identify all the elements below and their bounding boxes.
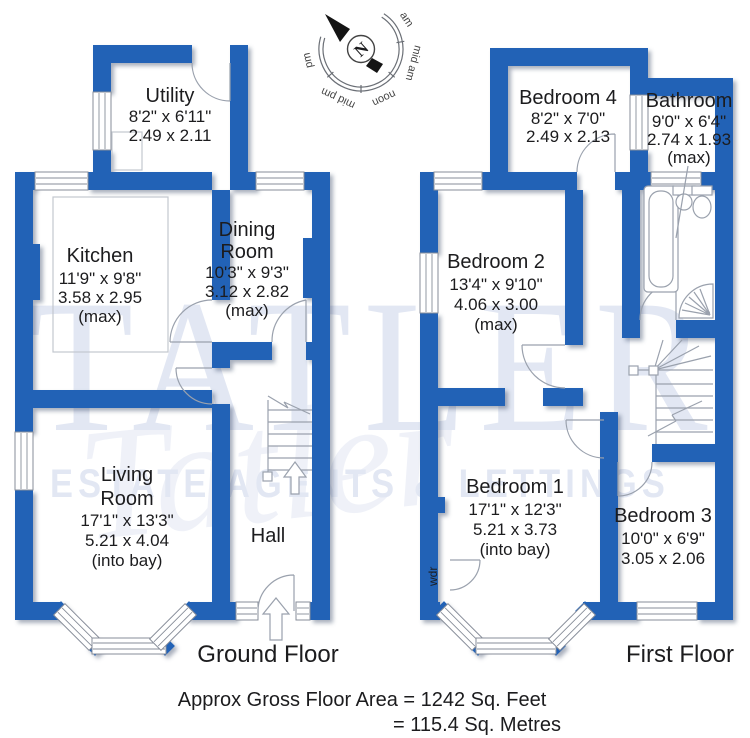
window — [15, 432, 33, 490]
wall-segment — [630, 150, 648, 172]
wall-segment — [88, 172, 93, 190]
window — [420, 253, 438, 313]
living-note: (into bay) — [92, 551, 163, 570]
front-door-sidelight — [236, 602, 258, 620]
bathtub-inner — [649, 191, 673, 287]
wall-segment — [230, 342, 272, 360]
newel-post — [649, 366, 658, 375]
chimney-breast — [33, 244, 40, 300]
utility-imperial: 8'2" x 6'11" — [129, 107, 212, 126]
wall-segment — [482, 172, 508, 190]
wall-segment — [622, 320, 640, 338]
wall-segment — [652, 444, 733, 462]
dining-note: (max) — [225, 301, 268, 320]
wall-segment — [420, 388, 505, 406]
front-door-sidelight — [296, 602, 310, 620]
bedroom1-imperial: 17'1" x 12'3" — [468, 500, 561, 519]
wall-segment — [676, 320, 733, 338]
toilet-bowl — [693, 196, 711, 218]
wall-segment — [490, 48, 508, 172]
living-label-1: Living — [101, 464, 153, 486]
utility-metric: 2.49 x 2.11 — [129, 126, 212, 145]
wall-segment — [248, 172, 256, 190]
bedroom2-imperial: 13'4" x 9'10" — [449, 275, 542, 294]
sun-label-noon: noon — [370, 87, 397, 108]
bedroom4-label: Bedroom 4 — [519, 87, 617, 109]
newel-post — [629, 366, 638, 375]
bedroom3-label: Bedroom 3 — [614, 505, 712, 527]
wardrobe-label: wdr — [426, 567, 440, 587]
entrance-arrow — [263, 598, 289, 640]
dining-imperial: 10'3" x 9'3" — [205, 263, 289, 282]
dining-metric: 3.12 x 2.82 — [205, 282, 289, 301]
wall-segment — [508, 172, 577, 190]
door-arc — [450, 560, 480, 590]
sun-label-pm: pm — [301, 52, 316, 69]
wall-segment — [697, 602, 733, 620]
bedroom4-imperial: 8'2" x 7'0" — [531, 109, 605, 128]
living-metric: 5.21 x 4.04 — [85, 531, 169, 550]
wall-segment — [15, 172, 35, 190]
window — [256, 172, 304, 190]
newel-post — [263, 472, 272, 481]
wall-segment — [420, 190, 438, 253]
bedroom1-metric: 5.21 x 3.73 — [473, 520, 557, 539]
wall-segment — [565, 190, 583, 345]
shower-drain — [706, 311, 710, 315]
bay-window — [476, 638, 556, 654]
bedroom3-metric: 3.05 x 2.06 — [621, 549, 705, 568]
bathroom-label: Bathroom — [646, 90, 733, 112]
window — [93, 92, 111, 150]
wall-segment — [312, 190, 330, 620]
floor-plan: TATLER Tatler ESTATE AGENTS & LETTINGS — [0, 0, 750, 738]
utility-label: Utility — [146, 85, 195, 107]
window — [434, 172, 482, 190]
wall-segment — [304, 172, 330, 190]
bathroom-metric: 2.74 x 1.93 — [647, 130, 731, 149]
wall-segment — [490, 48, 648, 66]
sun-label-am: am — [397, 10, 415, 29]
wall-segment — [230, 45, 248, 190]
kitchen-imperial: 11'9" x 9'8" — [59, 269, 142, 288]
living-label-2: Room — [100, 488, 153, 510]
wall-segment — [93, 45, 192, 63]
chimney-breast — [438, 497, 445, 513]
toilet-cistern — [692, 186, 712, 195]
wall-segment — [93, 150, 111, 190]
wall-segment — [212, 342, 230, 368]
sun-label-mid-pm: mid pm — [319, 85, 357, 111]
floor-area-line1: Approx Gross Floor Area = 1242 Sq. Feet — [178, 689, 547, 711]
chimney-breast — [303, 238, 312, 298]
hall-label: Hall — [251, 525, 285, 547]
ground-floor-title: Ground Floor — [197, 641, 338, 668]
bedroom1-note: (into bay) — [480, 540, 551, 559]
window — [35, 172, 88, 190]
footer: Approx Gross Floor Area = 1242 Sq. Feet … — [178, 689, 561, 736]
sink-basin — [676, 194, 692, 210]
wall-segment — [622, 172, 640, 320]
compass: N am mid am noon mid pm pm — [301, 10, 424, 111]
wall-segment — [306, 342, 312, 360]
wall-segment — [543, 388, 583, 406]
bedroom1-label: Bedroom 1 — [466, 476, 564, 498]
wall-segment — [715, 96, 733, 620]
wall-segment — [212, 404, 230, 620]
dining-label-2: Room — [220, 241, 273, 263]
kitchen-label: Kitchen — [67, 245, 134, 267]
bedroom2-metric: 4.06 x 3.00 — [454, 295, 538, 314]
wall-segment — [310, 602, 330, 620]
bay-window — [150, 604, 197, 651]
sun-label-mid-am: mid am — [403, 44, 424, 82]
living-imperial: 17'1" x 13'3" — [80, 511, 173, 530]
kitchen-note: (max) — [78, 307, 121, 326]
door-arc — [192, 63, 230, 101]
bedroom2-note: (max) — [474, 315, 517, 334]
bathroom-note: (max) — [667, 148, 710, 167]
floor-area-line2: = 115.4 Sq. Metres — [393, 714, 561, 736]
bay-window — [549, 604, 596, 651]
compass-needle — [325, 14, 350, 42]
kitchen-metric: 3.58 x 2.95 — [58, 288, 142, 307]
window — [637, 602, 697, 620]
wall-segment — [111, 172, 212, 190]
wall-segment — [15, 490, 33, 620]
entrance — [263, 598, 289, 640]
wall-segment — [420, 172, 434, 190]
dining-label-1: Dining — [219, 219, 276, 241]
bathroom-imperial: 9'0" x 6'4" — [652, 112, 726, 131]
bedroom4-metric: 2.49 x 2.13 — [526, 127, 610, 146]
bedroom3-imperial: 10'0" x 6'9" — [621, 529, 705, 548]
wall-segment — [15, 190, 33, 432]
first-floor-title: First Floor — [626, 641, 734, 668]
bedroom2-label: Bedroom 2 — [447, 251, 545, 273]
